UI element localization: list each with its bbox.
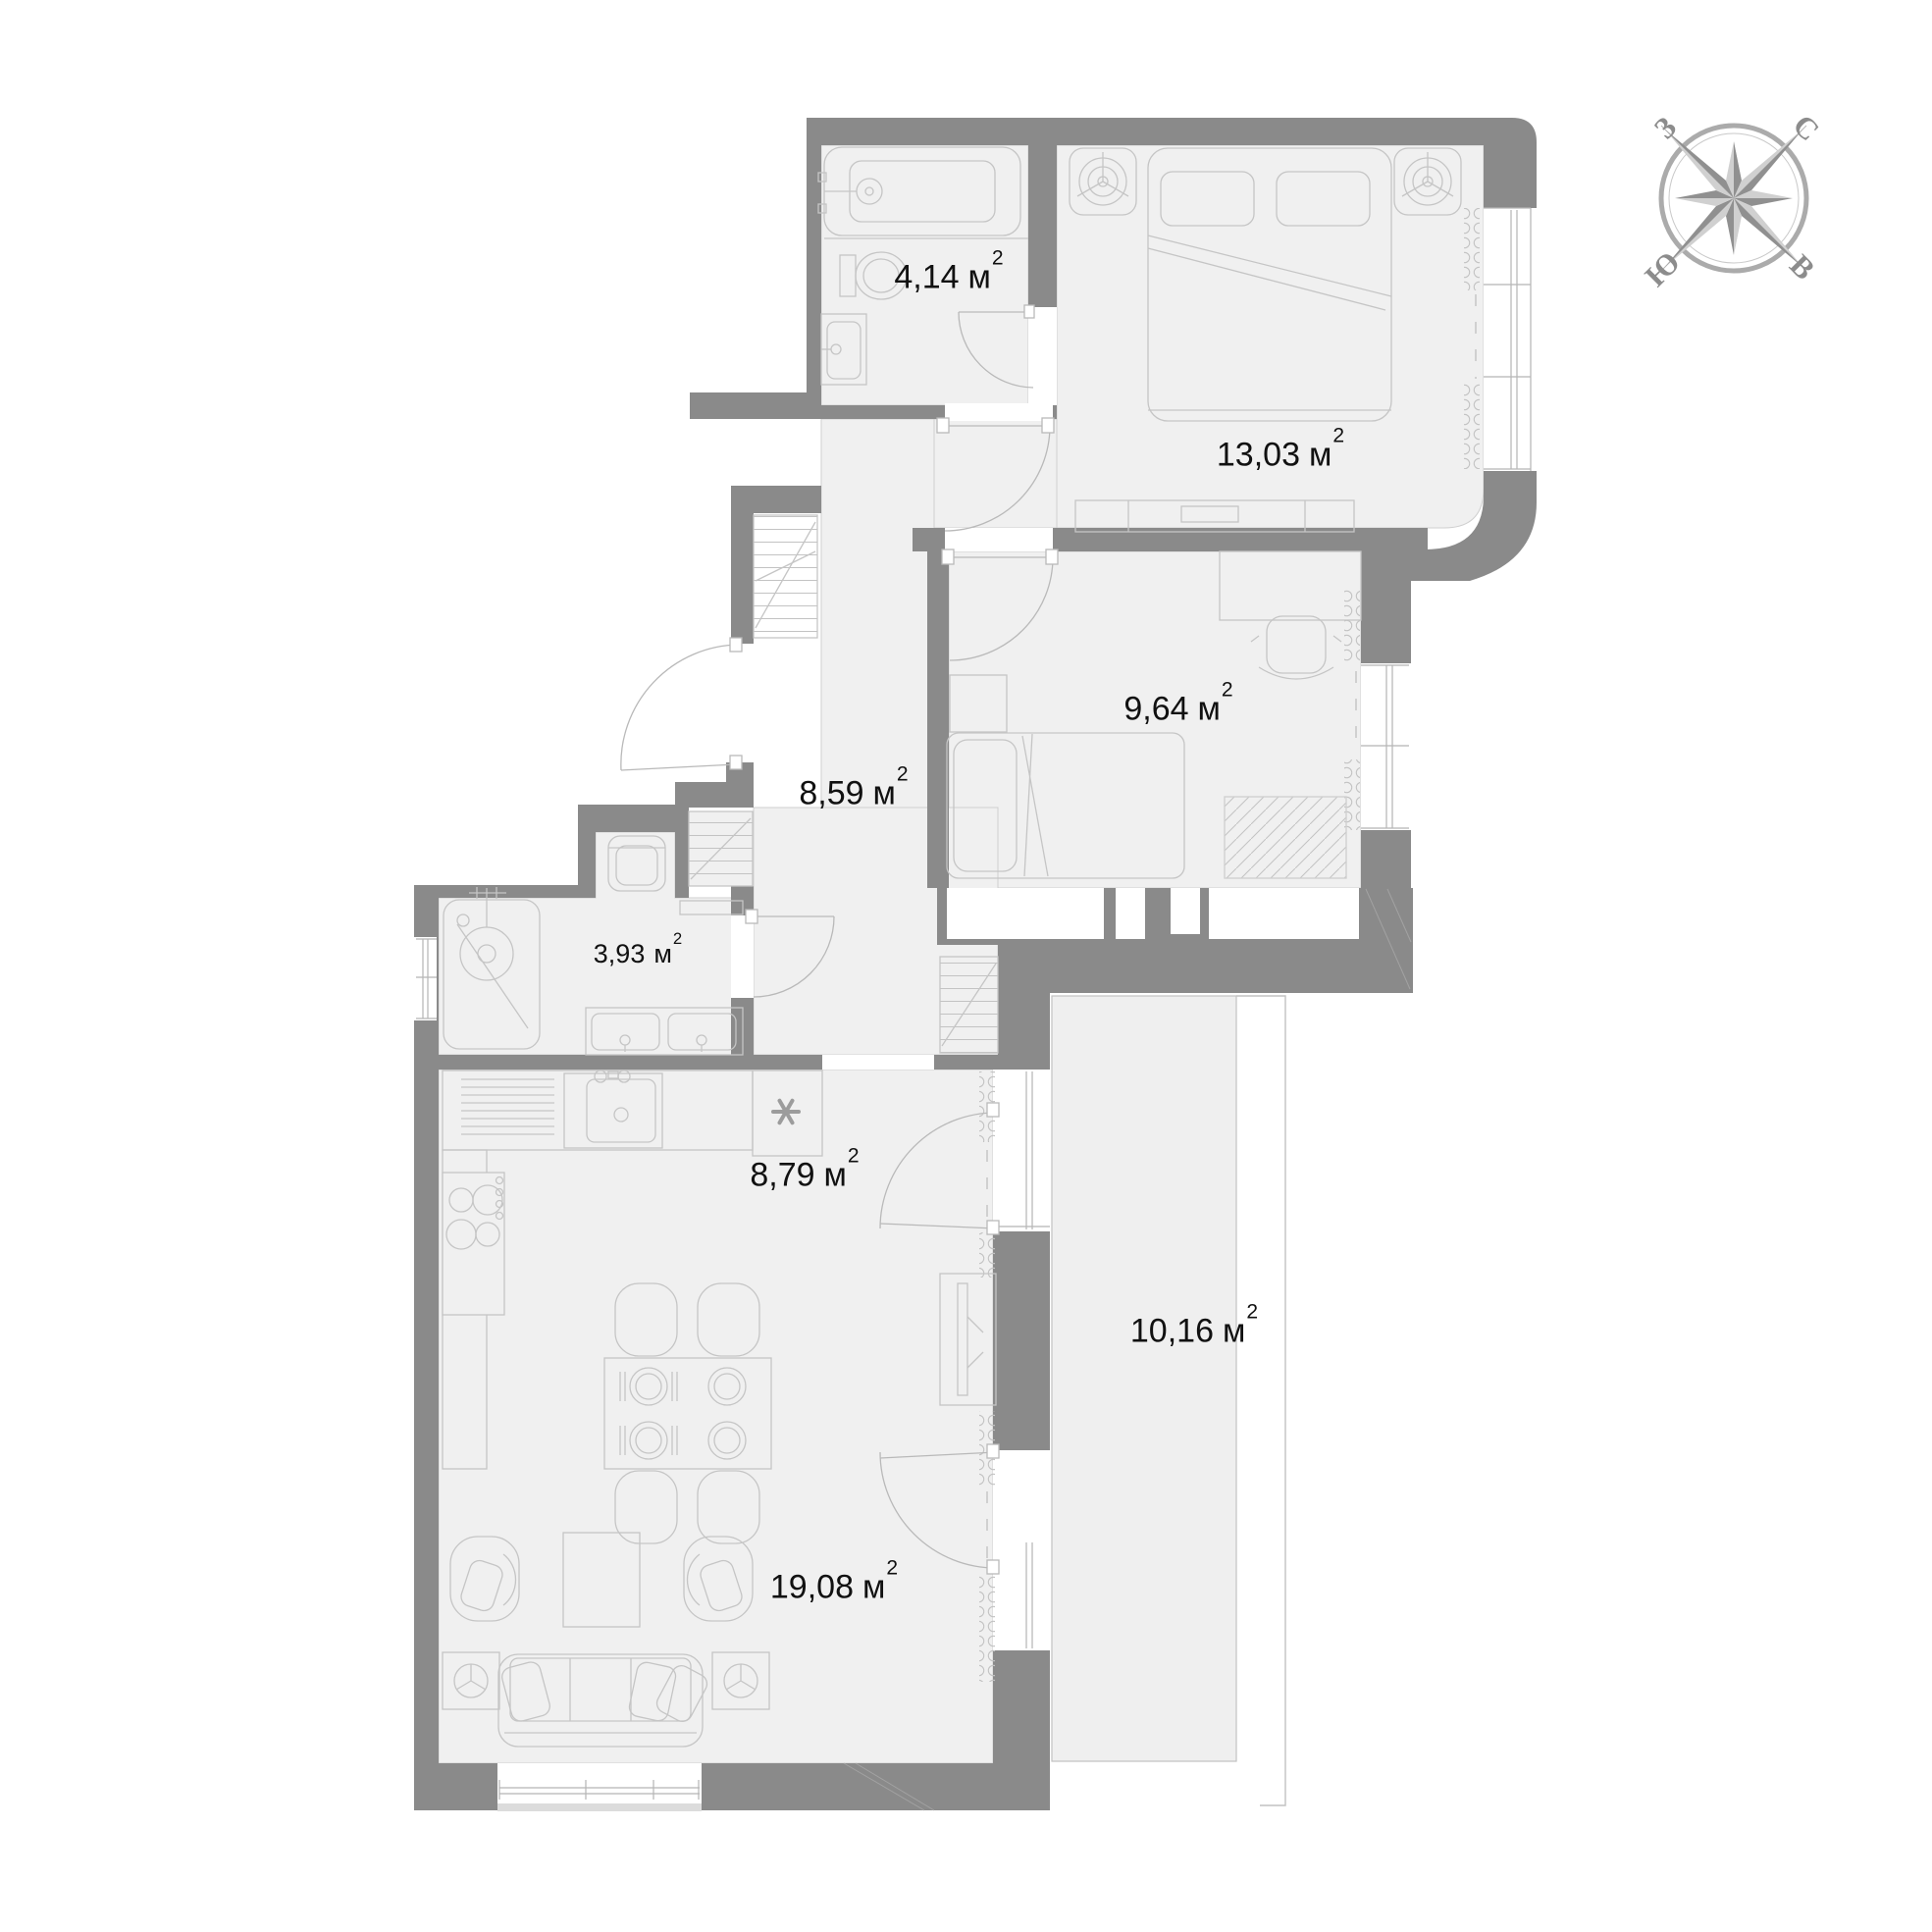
- wall-kitchen-top: [414, 1055, 822, 1070]
- area-value: 10,16: [1130, 1313, 1214, 1350]
- area-label-ensuite-bathroom: 4,14м2: [894, 258, 1003, 296]
- wall-bottom-right: [702, 1763, 1050, 1810]
- passage-hall-kitchen: [822, 1055, 934, 1070]
- wall-bathroom-top: [414, 885, 596, 898]
- area-value: 8,59: [799, 775, 863, 812]
- area-unit-sup: 2: [1246, 1301, 1258, 1324]
- compass-rose: С В Ю З: [1638, 108, 1826, 293]
- area-value: 9,64: [1123, 691, 1188, 728]
- wall-hall-top-stub: [690, 392, 821, 419]
- floor-plan-canvas: С В Ю З 4,14м2 13,03м2 9,64м2 8,59м2 3,9…: [0, 0, 1932, 1932]
- area-unit-sup: 2: [1332, 425, 1344, 447]
- area-value: 13,03: [1217, 437, 1300, 474]
- window-bathroom: [414, 937, 437, 1020]
- area-label-bedroom-2: 9,64м2: [1123, 690, 1232, 728]
- area-label-living-room: 19,08м2: [770, 1568, 898, 1606]
- floor-kitchen-living: [439, 1070, 993, 1763]
- area-unit: м: [1198, 691, 1221, 728]
- door-opening-balcony-living: [993, 1450, 1050, 1540]
- wall-closet-top: [675, 782, 754, 808]
- wall-niche-right: [675, 832, 689, 898]
- wall-balcony-mid: [993, 1231, 1050, 1450]
- area-unit: м: [873, 775, 896, 812]
- shaft-niche-2: [1116, 888, 1145, 939]
- area-unit: м: [653, 939, 672, 968]
- wall-bedroom2-right-b: [1361, 830, 1411, 905]
- area-unit: м: [824, 1157, 847, 1194]
- area-value: 19,08: [770, 1569, 854, 1606]
- wall-ensuite-left: [807, 145, 821, 419]
- wall-left: [414, 1070, 439, 1763]
- radiator-icon: [1344, 589, 1360, 661]
- area-label-hallway: 8,59м2: [799, 774, 908, 812]
- area-unit: м: [862, 1569, 885, 1606]
- shaft-niche-3: [1171, 888, 1200, 934]
- wardrobe-icon: [689, 811, 753, 886]
- door-entrance: [621, 638, 742, 770]
- door-opening-ensuite: [1028, 307, 1057, 405]
- wall-top: [807, 118, 1484, 145]
- area-value: 8,79: [750, 1157, 814, 1194]
- rug-icon: [1225, 797, 1346, 878]
- area-unit-sup: 2: [1222, 679, 1233, 702]
- balcony-railing: [1236, 996, 1285, 1805]
- wall-hall-bedroom2: [927, 551, 949, 888]
- door-opening-bedroom-2: [945, 528, 1053, 551]
- area-unit-sup: 2: [848, 1145, 860, 1168]
- wall-bedroom2-right-a: [1361, 548, 1411, 663]
- radiator-icon: [979, 1232, 995, 1278]
- area-unit-sup: 2: [992, 247, 1004, 270]
- door-opening-bathroom: [731, 915, 754, 998]
- area-unit-sup: 2: [673, 929, 682, 948]
- compass-star: [1664, 129, 1803, 268]
- wall-hall-left: [731, 513, 754, 644]
- shaft-niche-4: [1209, 888, 1359, 939]
- area-value: 4,14: [894, 259, 959, 296]
- area-unit: м: [1309, 437, 1332, 474]
- wall-kitchen-top-right: [934, 1055, 1001, 1070]
- radiator-icon: [1464, 208, 1480, 290]
- area-label-bedroom: 13,03м2: [1217, 436, 1344, 474]
- area-unit-sup: 2: [886, 1557, 898, 1580]
- area-label-bathroom: 3,93м2: [594, 938, 682, 969]
- area-label-kitchen: 8,79м2: [750, 1156, 859, 1194]
- wall-wardrobe-cap: [731, 486, 821, 513]
- area-label-balcony: 10,16м2: [1130, 1312, 1258, 1350]
- door-opening-vestibule: [945, 403, 1053, 421]
- shaft-niche-1: [947, 888, 1104, 939]
- radiator-icon: [1464, 383, 1480, 469]
- area-unit-sup: 2: [897, 763, 909, 786]
- wall-bottom-left: [414, 1763, 497, 1810]
- door-opening-balcony-kitchen: [993, 1070, 1050, 1231]
- wall-balcony-corner: [998, 945, 1050, 1070]
- window-living: [993, 1540, 1050, 1650]
- wall-balcony-low: [993, 1650, 1050, 1763]
- radiator-icon: [979, 1574, 995, 1682]
- floor-balcony: [1052, 996, 1236, 1761]
- window-sill: [497, 1803, 702, 1811]
- area-unit: м: [968, 259, 991, 296]
- wall-top-right-corner: [1484, 118, 1537, 208]
- window-bedroom: [1484, 208, 1537, 471]
- wardrobe-icon: [940, 957, 998, 1053]
- area-value: 3,93: [594, 939, 646, 968]
- wall-niche-top: [578, 805, 689, 832]
- wardrobe-icon: [754, 515, 817, 638]
- area-unit: м: [1223, 1313, 1245, 1350]
